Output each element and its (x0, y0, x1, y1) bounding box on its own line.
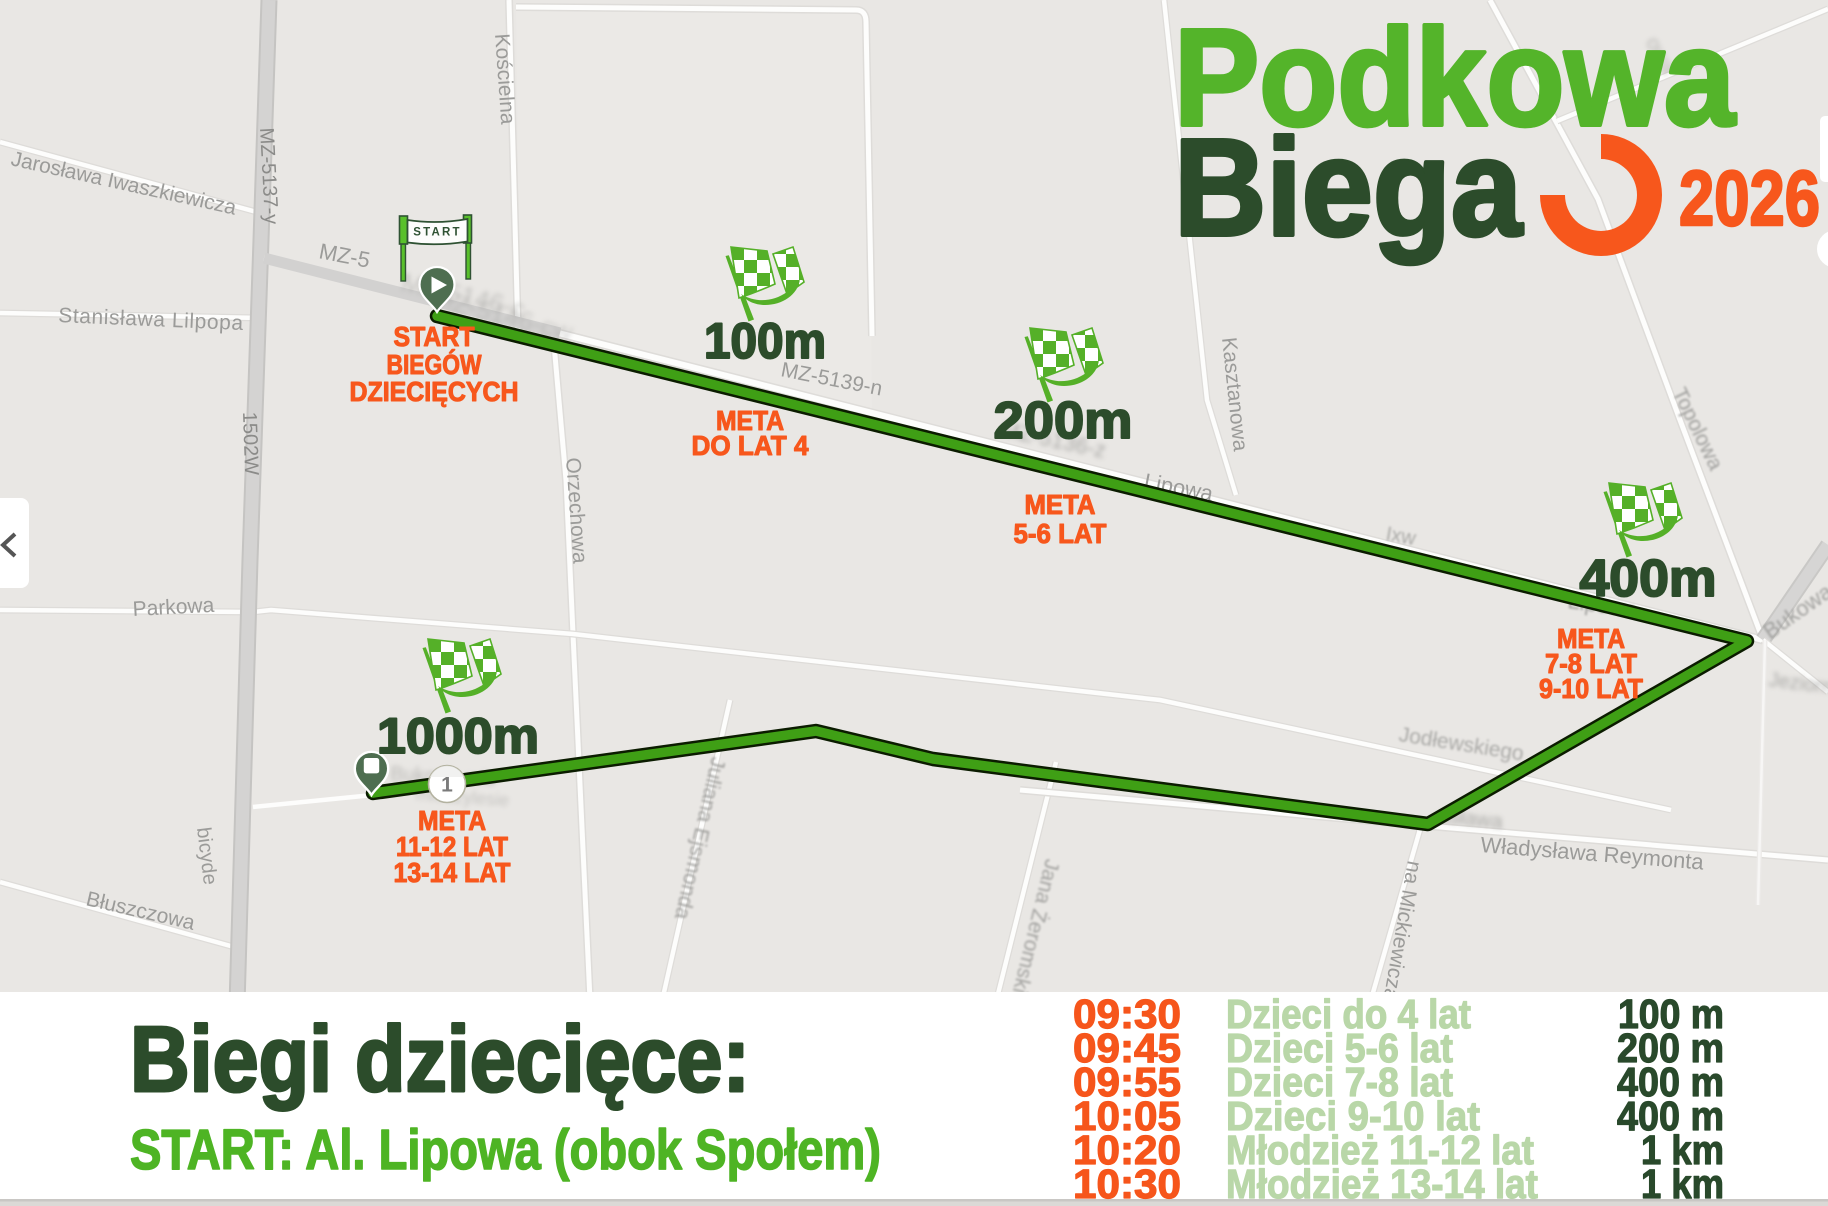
svg-text:DZIECIĘCYCH: DZIECIĘCYCH (350, 376, 519, 407)
svg-text:Młodzież 13-14 lat: Młodzież 13-14 lat (1226, 1161, 1538, 1206)
svg-text:1 km: 1 km (1641, 1161, 1724, 1206)
svg-text:2026: 2026 (1679, 154, 1820, 242)
svg-text:Biega: Biega (1174, 111, 1523, 265)
svg-text:1: 1 (441, 774, 453, 797)
svg-text:START: START (413, 227, 461, 239)
svg-text:100m: 100m (704, 313, 826, 369)
svg-text:5-6 LAT: 5-6 LAT (1014, 518, 1107, 549)
svg-text:200m: 200m (994, 392, 1133, 450)
svg-text:DO LAT 4: DO LAT 4 (692, 430, 809, 461)
svg-text:13-14 LAT: 13-14 LAT (394, 857, 511, 888)
svg-text:START: Al. Lipowa (obok Społem: START: Al. Lipowa (obok Społem) (130, 1118, 881, 1182)
svg-text:Biegi dziecięce:: Biegi dziecięce: (130, 1007, 750, 1111)
svg-text:400m: 400m (1580, 550, 1717, 608)
svg-text:10:30: 10:30 (1073, 1161, 1181, 1206)
svg-text:1502W: 1502W (238, 411, 262, 475)
svg-text:Parkowa: Parkowa (132, 594, 215, 621)
svg-text:1000m: 1000m (377, 708, 539, 764)
svg-text:9-10 LAT: 9-10 LAT (1539, 673, 1643, 704)
svg-text:META: META (1025, 489, 1096, 520)
svg-text:START: START (394, 321, 475, 352)
